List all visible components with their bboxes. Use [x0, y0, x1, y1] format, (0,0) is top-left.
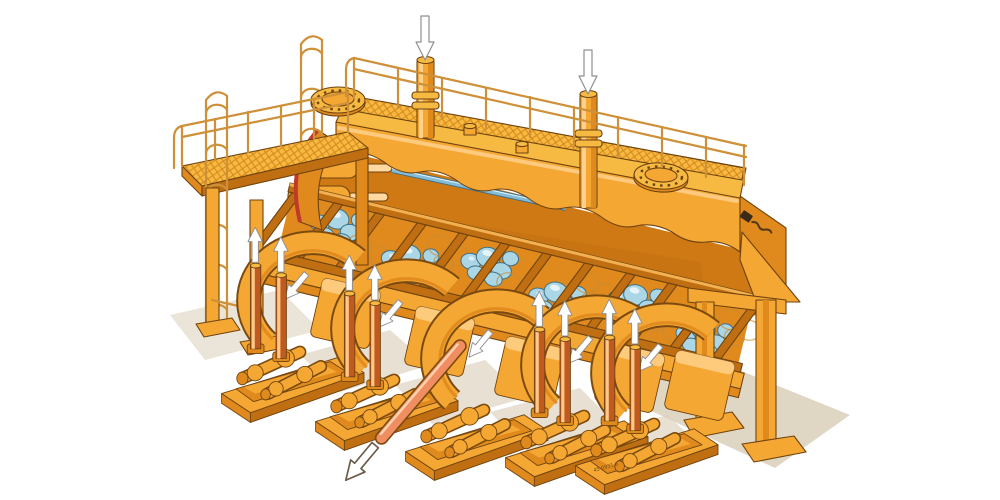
- flow-down-arrow: [579, 50, 597, 94]
- flow-down-arrow: [416, 16, 434, 60]
- manhole-cover: [311, 87, 365, 116]
- deck-stub: [516, 141, 528, 153]
- machine-illustration: 45 0931 a: [0, 0, 1000, 500]
- illustration-page: 45 0931 a: [0, 0, 1000, 500]
- deck-stub: [464, 123, 476, 135]
